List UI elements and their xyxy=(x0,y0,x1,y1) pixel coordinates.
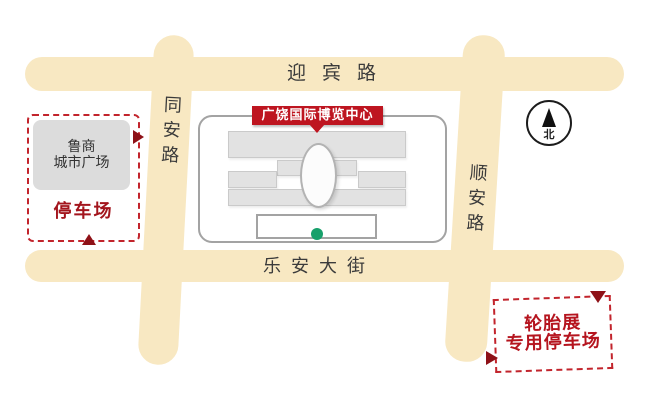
tire-parking-line2: 专用停车场 xyxy=(506,332,602,354)
road-label-lean-avenue: 乐安大街 xyxy=(263,258,375,276)
map-canvas: 同安路 顺安路 迎宾路 乐安大街 广饶国际博览中心 鲁商 城市广场 停车场 轮胎… xyxy=(0,0,649,404)
north-arrow-icon xyxy=(542,108,556,127)
parking-label: 停车场 xyxy=(27,203,140,221)
expo-hall-east-block xyxy=(358,171,406,188)
road-label-yingbin: 迎宾路 xyxy=(287,64,392,83)
lushang-plaza-building: 鲁商 城市广场 xyxy=(33,120,130,190)
parking-marker-right-triangle-icon xyxy=(133,130,144,144)
expo-label-pointer-icon xyxy=(309,124,325,133)
expo-center-label: 广饶国际博览中心 xyxy=(252,106,383,125)
entrance-dot-marker-icon xyxy=(311,228,323,240)
expo-hall-west-block xyxy=(228,171,277,188)
compass: 北 xyxy=(526,100,572,146)
tire-marker-right-triangle-icon xyxy=(486,351,498,365)
parking-marker-up-triangle-icon xyxy=(82,234,96,245)
plaza-name-line2: 城市广场 xyxy=(54,155,110,171)
north-label: 北 xyxy=(528,129,570,140)
tire-marker-down-triangle-icon xyxy=(590,291,606,303)
expo-central-dome xyxy=(300,143,337,208)
tire-parking-box: 轮胎展 专用停车场 xyxy=(493,295,614,373)
plaza-name-line1: 鲁商 xyxy=(68,139,96,155)
road-label-shunan: 顺安路 xyxy=(464,163,487,239)
road-label-tongan: 同安路 xyxy=(159,95,181,171)
